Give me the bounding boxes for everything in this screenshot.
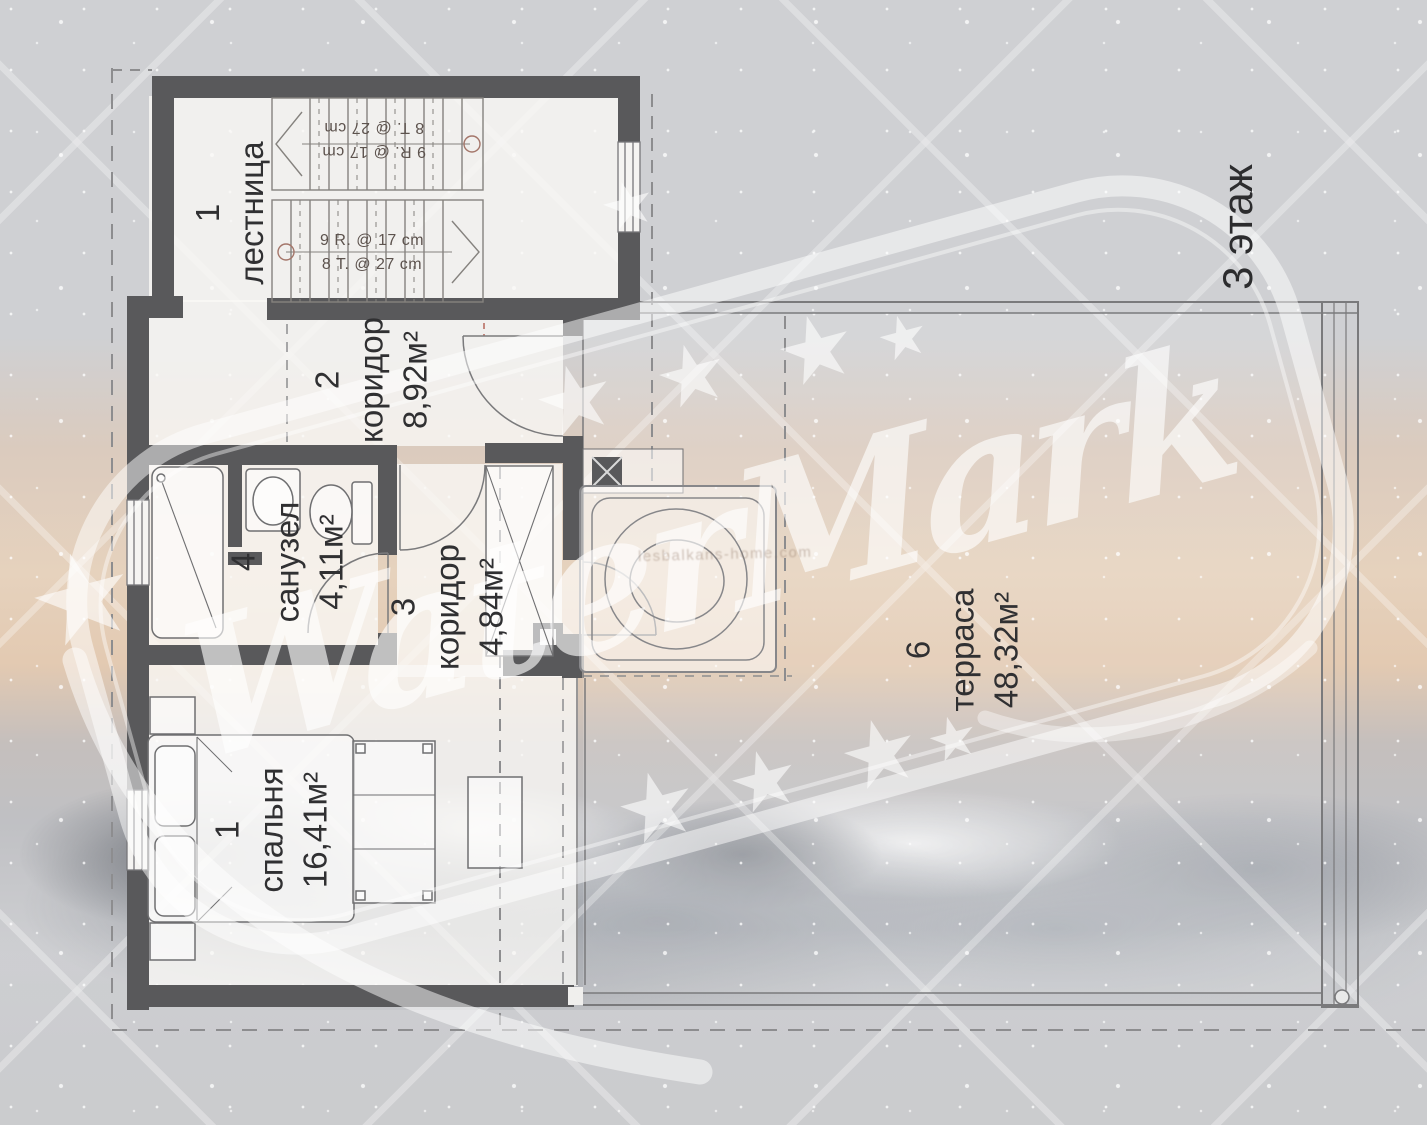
shower-head [157, 474, 165, 482]
room-number: 4 [222, 553, 266, 571]
terrace-railing-east [1322, 302, 1358, 1007]
room-label-bedroom: 1 спальня 16,41м² [206, 767, 339, 892]
room-number: 2 [306, 371, 350, 389]
room-area: 8,92м² [394, 331, 438, 429]
room-number: 1 [186, 204, 230, 222]
wall [485, 443, 563, 463]
wall [127, 645, 397, 665]
dresser-handle [423, 891, 432, 900]
terrace-railing-lines [1334, 302, 1346, 1007]
room-name: коридор [350, 317, 394, 443]
toilet-cistern [352, 482, 372, 544]
room-label-corridor2: 2 коридор 8,92м² [306, 317, 439, 443]
nightstand [150, 697, 195, 734]
room-number: 1 [206, 821, 250, 839]
room-number: 6 [897, 641, 941, 659]
pillow [155, 836, 195, 916]
wall [127, 985, 574, 1007]
dresser [353, 741, 435, 903]
dresser-handle [356, 891, 365, 900]
wall [618, 76, 640, 142]
window-staircase [618, 142, 640, 232]
stair-treads: 8 T. @ 27 cm [322, 253, 422, 277]
stair-risers: 9 R. @ 17 cm [322, 139, 426, 163]
wall [127, 296, 149, 680]
dresser-handle [356, 744, 365, 753]
wall [127, 445, 397, 465]
wall-gap [568, 987, 583, 1005]
stair-note-upper: 9 R. @ 17 cm 8 T. @ 27 cm [322, 115, 426, 163]
room-label-terrace: 6 терраса 48,32м² [897, 588, 1030, 711]
room-area: 4,84м² [470, 558, 514, 656]
room-name: спальня [250, 767, 294, 892]
nightstand [150, 923, 195, 960]
dresser-handle [423, 744, 432, 753]
window-bedroom [127, 790, 149, 870]
room-area: 48,32м² [985, 592, 1029, 708]
wall [378, 465, 397, 555]
stair-note-lower: 9 R. @ 17 cm 8 T. @ 27 cm [320, 229, 424, 277]
stair-risers: 9 R. @ 17 cm [320, 229, 424, 253]
jacuzzi [580, 486, 776, 672]
room-name: коридор [426, 544, 470, 670]
room-name: санузел [266, 502, 310, 623]
window-bathroom [127, 500, 149, 585]
room-number: 3 [382, 598, 426, 616]
desk [468, 777, 522, 868]
pillow [155, 746, 195, 826]
floor-plan-page: WaterMark ★ ★ ★ ★ ★ ★ ★ ★ ★ ★ lesbalkans… [0, 0, 1427, 1125]
stair-treads: 8 T. @ 27 cm [324, 115, 424, 139]
floor-title: 3 этаж [1214, 164, 1262, 290]
wall [563, 320, 583, 336]
room-label-staircase: 1 лестница [186, 141, 274, 284]
room-label-corridor3: 3 коридор 4,84м² [382, 544, 515, 670]
wall [152, 76, 174, 308]
wall [152, 76, 640, 98]
room-name: лестница [230, 141, 274, 284]
room-area: 16,41м² [294, 772, 338, 888]
room-label-bathroom: 4 санузел 4,11м² [222, 502, 355, 623]
room-area: 4,11м² [310, 514, 354, 609]
room-name: терраса [941, 588, 985, 711]
terrace-drain [1335, 990, 1349, 1004]
